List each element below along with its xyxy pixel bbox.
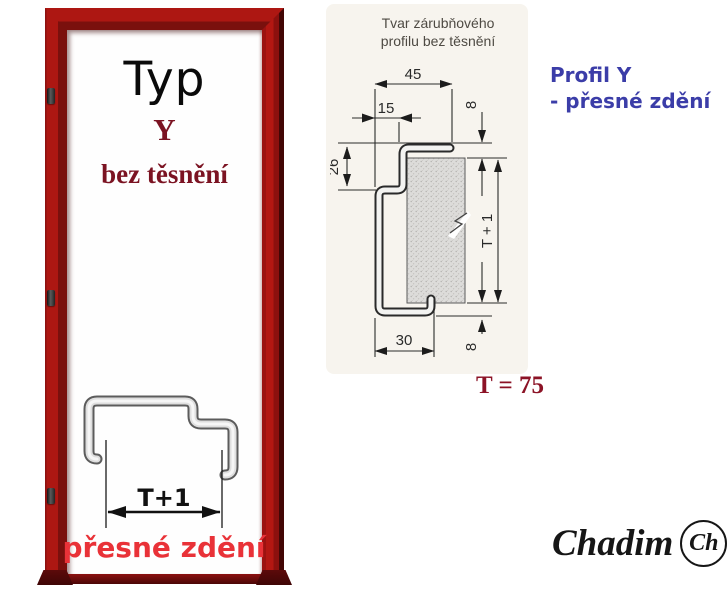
dim-bottom-flange-label: 8 <box>463 343 480 351</box>
dim-top-flange: 8 <box>463 101 482 196</box>
dim-throat-width: 30 <box>375 332 434 351</box>
drawing-title: Tvar zárubňového profilu bez těsnění <box>368 14 508 50</box>
door-frame-top-rail <box>45 8 284 30</box>
frame-profile-cross-section: 45 15 26 8 T + 1 8 <box>330 52 520 372</box>
profile-callout: Profil Y - přesné zdění <box>550 62 710 114</box>
dim-rebate-depth: 26 <box>330 147 347 186</box>
seal-note-label: bez těsnění <box>67 159 262 190</box>
dim-rebate-depth-label: 26 <box>330 159 342 176</box>
door-profile-sketch <box>75 390 247 534</box>
thickness-label: T = 75 <box>455 372 565 400</box>
logo-wordmark: Chadim <box>552 522 673 565</box>
hinge-middle <box>47 290 55 306</box>
type-label: Typ <box>67 54 262 106</box>
door-threshold <box>59 574 270 584</box>
page: Typ Y bez těsnění T+1 přesné zdění Tvar … <box>0 0 727 591</box>
door-frame-right-jamb <box>262 8 284 584</box>
dim-wall-span-label: T + 1 <box>479 214 496 248</box>
profile-note-label: - přesné zdění <box>550 88 710 114</box>
dim-overall-width-label: 45 <box>405 66 422 83</box>
sketch-dimension-label: T+1 <box>106 484 222 512</box>
sketch-profile-outline <box>89 401 233 475</box>
hinge-bottom <box>47 488 55 504</box>
dim-overall-width: 45 <box>375 66 452 84</box>
chadim-logo: Chadim Ch <box>552 518 727 568</box>
logo-monogram-circle: Ch <box>680 520 727 567</box>
masonry-note-label: přesné zdění <box>48 531 280 564</box>
variant-label: Y <box>67 112 262 148</box>
dim-top-flange-label: 8 <box>463 101 480 109</box>
hinge-top <box>47 88 55 104</box>
drawing-title-line1: Tvar zárubňového <box>368 14 508 32</box>
logo-monogram-text: Ch <box>689 530 718 557</box>
dim-face-width-label: 15 <box>378 100 395 117</box>
profile-name-label: Profil Y <box>550 62 710 88</box>
dim-face-width: 15 <box>352 100 421 123</box>
dim-throat-width-label: 30 <box>396 332 413 349</box>
drawing-title-line2: profilu bez těsnění <box>368 32 508 50</box>
dim-bottom-flange: 8 <box>463 262 482 351</box>
